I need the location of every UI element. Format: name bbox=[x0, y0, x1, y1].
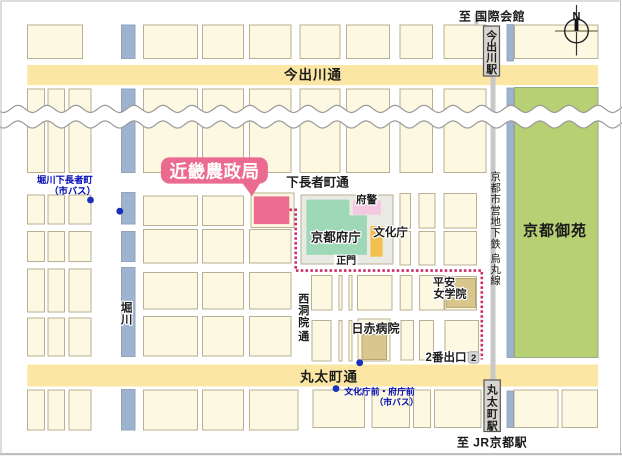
svg-text:西: 西 bbox=[298, 293, 309, 306]
svg-text:2番出口: 2番出口 bbox=[426, 350, 467, 364]
svg-text:女学院: 女学院 bbox=[434, 286, 467, 300]
svg-text:府警: 府警 bbox=[356, 193, 377, 206]
svg-text:町: 町 bbox=[487, 408, 498, 421]
svg-text:正門: 正門 bbox=[336, 255, 356, 267]
svg-text:川: 川 bbox=[120, 314, 133, 327]
svg-text:駅: 駅 bbox=[485, 63, 497, 76]
svg-text:文化庁: 文化庁 bbox=[373, 225, 408, 239]
svg-text:都: 都 bbox=[490, 182, 501, 194]
svg-text:洞: 洞 bbox=[298, 303, 309, 317]
svg-text:市: 市 bbox=[490, 193, 501, 206]
svg-text:出: 出 bbox=[486, 40, 497, 54]
svg-text:至 JR京都駅: 至 JR京都駅 bbox=[457, 435, 528, 450]
svg-text:今: 今 bbox=[485, 29, 497, 43]
svg-text:2: 2 bbox=[471, 353, 476, 364]
svg-text:地: 地 bbox=[490, 215, 501, 228]
svg-text:太: 太 bbox=[487, 395, 498, 409]
svg-text:京都御苑: 京都御苑 bbox=[523, 222, 587, 240]
svg-text:川: 川 bbox=[485, 52, 497, 65]
svg-text:近畿農政局: 近畿農政局 bbox=[170, 161, 260, 181]
svg-text:下: 下 bbox=[490, 227, 501, 239]
svg-text:平安: 平安 bbox=[433, 275, 455, 289]
svg-text:通: 通 bbox=[298, 330, 309, 343]
svg-text:日赤病院: 日赤病院 bbox=[351, 321, 399, 336]
svg-text:丸: 丸 bbox=[486, 383, 498, 397]
svg-text:京都府庁: 京都府庁 bbox=[311, 230, 362, 245]
svg-text:今出川通: 今出川通 bbox=[284, 66, 342, 82]
svg-text:文化庁前・府庁前: 文化庁前・府庁前 bbox=[344, 386, 415, 397]
svg-text:丸太町通: 丸太町通 bbox=[299, 368, 358, 384]
svg-text:堀川下長者町: 堀川下長者町 bbox=[37, 174, 93, 185]
svg-text:（市バス）: （市バス） bbox=[49, 185, 96, 196]
svg-text:駅: 駅 bbox=[486, 420, 498, 433]
svg-text:N: N bbox=[573, 11, 581, 23]
svg-text:院: 院 bbox=[298, 315, 309, 329]
svg-text:至 国際会館: 至 国際会館 bbox=[459, 8, 525, 23]
svg-text:下長者町通: 下長者町通 bbox=[286, 175, 349, 190]
svg-text:営: 営 bbox=[490, 204, 501, 217]
svg-text:京: 京 bbox=[490, 170, 501, 183]
svg-text:鉄: 鉄 bbox=[490, 237, 501, 250]
svg-text:烏: 烏 bbox=[490, 252, 501, 265]
svg-text:丸: 丸 bbox=[490, 263, 501, 276]
svg-text:（市バス）: （市バス） bbox=[375, 396, 419, 407]
svg-text:堀: 堀 bbox=[121, 301, 133, 315]
svg-text:線: 線 bbox=[490, 274, 501, 287]
